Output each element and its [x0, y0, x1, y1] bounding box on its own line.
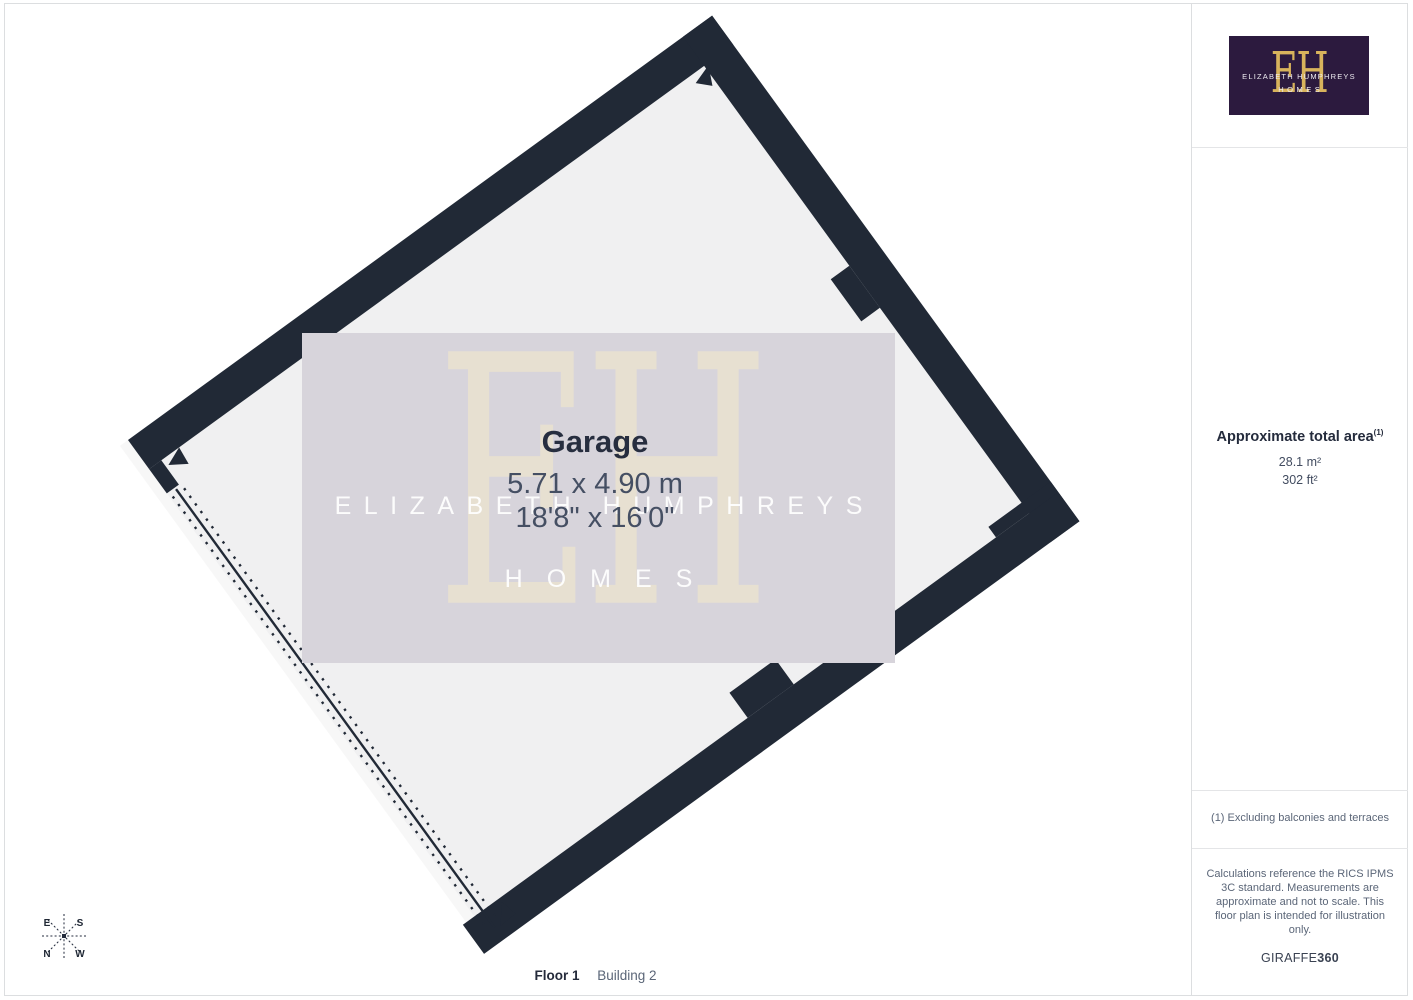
total-area-title-text: Approximate total area — [1217, 429, 1374, 445]
total-area-metric: 28.1 m² — [1192, 453, 1408, 472]
provider-suffix: 360 — [1317, 951, 1339, 965]
provider-brand: GIRAFFE — [1261, 951, 1317, 965]
floor-number: Floor 1 — [534, 968, 579, 983]
sidebar-section-divider — [1192, 147, 1408, 148]
floorplan-page: E S N W EH ELIZABETH HUMPHREYS HOMES Gar… — [0, 0, 1413, 1000]
building-number: Building 2 — [597, 968, 656, 983]
provider-logo: GIRAFFE360 — [1192, 951, 1408, 965]
total-area-imperial: 302 ft² — [1192, 471, 1408, 490]
disclaimer-text: Calculations reference the RICS IPMS 3C … — [1205, 867, 1395, 937]
company-logo: EH ELIZABETH HUMPHREYS HOMES — [1229, 36, 1369, 115]
area-footnote: (1) Excluding balconies and terraces — [1192, 812, 1408, 824]
logo-brand-sub: HOMES — [1229, 85, 1369, 94]
total-area-block: Approximate total area(1) 28.1 m² 302 ft… — [1192, 428, 1408, 490]
floor-building-label: Floor 1 Building 2 — [0, 968, 1191, 983]
footnote-reference: (1) — [1374, 428, 1384, 437]
sidebar-section-divider — [1192, 848, 1408, 849]
total-area-title: Approximate total area(1) — [1192, 428, 1408, 445]
logo-brand-name: ELIZABETH HUMPHREYS — [1229, 72, 1369, 81]
sidebar-section-divider — [1192, 790, 1408, 791]
